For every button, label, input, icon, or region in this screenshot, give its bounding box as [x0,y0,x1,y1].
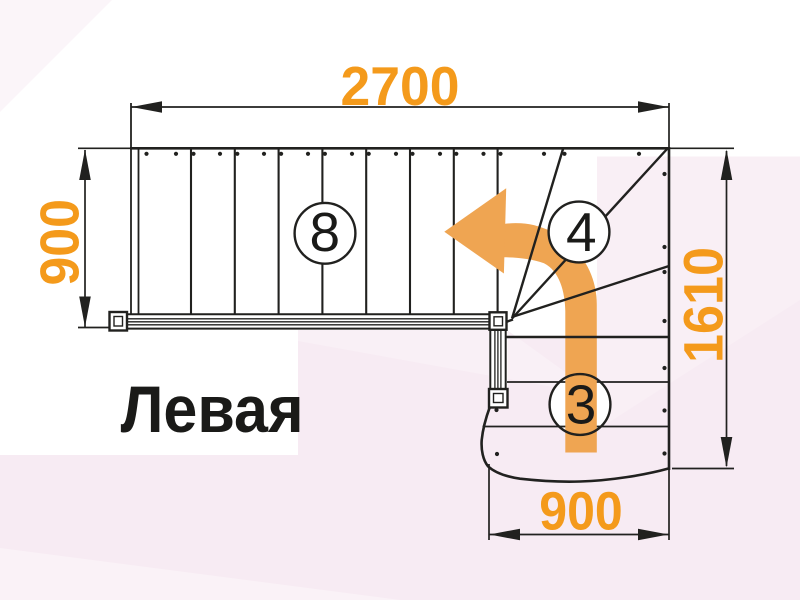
svg-text:2700: 2700 [341,55,460,117]
svg-text:Левая: Левая [121,372,304,446]
svg-text:900: 900 [539,482,623,542]
svg-text:8: 8 [310,201,341,263]
svg-text:3: 3 [566,373,597,435]
svg-text:4: 4 [566,201,597,263]
svg-text:900: 900 [29,199,91,286]
svg-text:1610: 1610 [672,247,735,363]
